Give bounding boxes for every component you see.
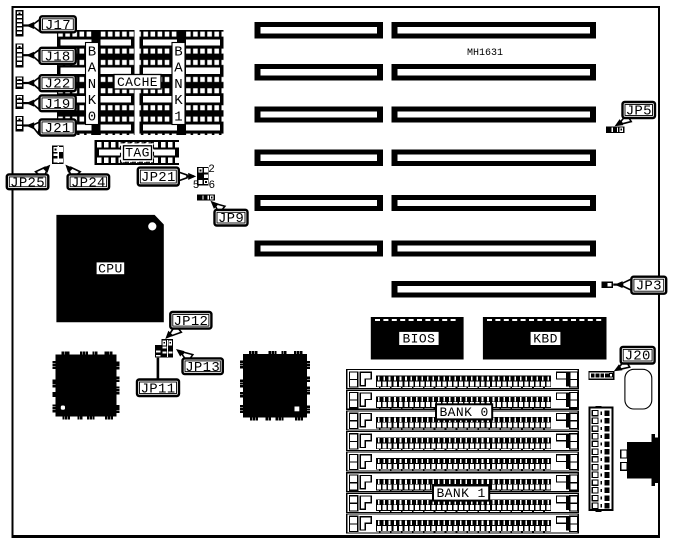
svg-text:5: 5 [193,180,200,192]
svg-text:KBD: KBD [533,332,558,347]
svg-text:B: B [88,45,96,61]
svg-text:JP21: JP21 [141,170,176,186]
svg-text:JP13: JP13 [185,360,220,376]
svg-text:BIOS: BIOS [402,332,435,347]
svg-text:N: N [174,77,182,93]
svg-text:B: B [174,45,182,61]
svg-text:2: 2 [208,164,215,176]
svg-text:K: K [174,93,183,109]
svg-text:BANK 0: BANK 0 [439,405,488,420]
svg-text:1: 1 [174,109,182,125]
svg-text:N: N [88,77,96,93]
svg-text:A: A [88,61,97,77]
svg-text:J22: J22 [45,77,71,93]
svg-text:J21: J21 [45,121,71,137]
svg-text:J18: J18 [45,49,71,65]
svg-text:JP25: JP25 [10,175,45,191]
svg-text:JP3: JP3 [636,279,662,295]
svg-text:CACHE: CACHE [117,75,158,90]
svg-text:JP5: JP5 [626,104,652,120]
svg-text:BANK 1: BANK 1 [436,486,485,501]
svg-text:JP24: JP24 [71,175,106,191]
svg-text:JP12: JP12 [173,314,208,330]
svg-text:K: K [88,93,97,109]
svg-text:J17: J17 [45,18,71,34]
svg-text:JP9: JP9 [218,211,244,227]
svg-text:A: A [174,61,183,77]
svg-text:J19: J19 [45,97,71,113]
svg-text:6: 6 [208,180,215,192]
svg-text:J20: J20 [625,349,651,365]
svg-text:TAG: TAG [125,146,150,161]
svg-text:0: 0 [88,109,96,125]
svg-text:MH1631: MH1631 [467,48,503,59]
svg-text:CPU: CPU [98,261,123,276]
svg-text:JP11: JP11 [141,381,176,397]
